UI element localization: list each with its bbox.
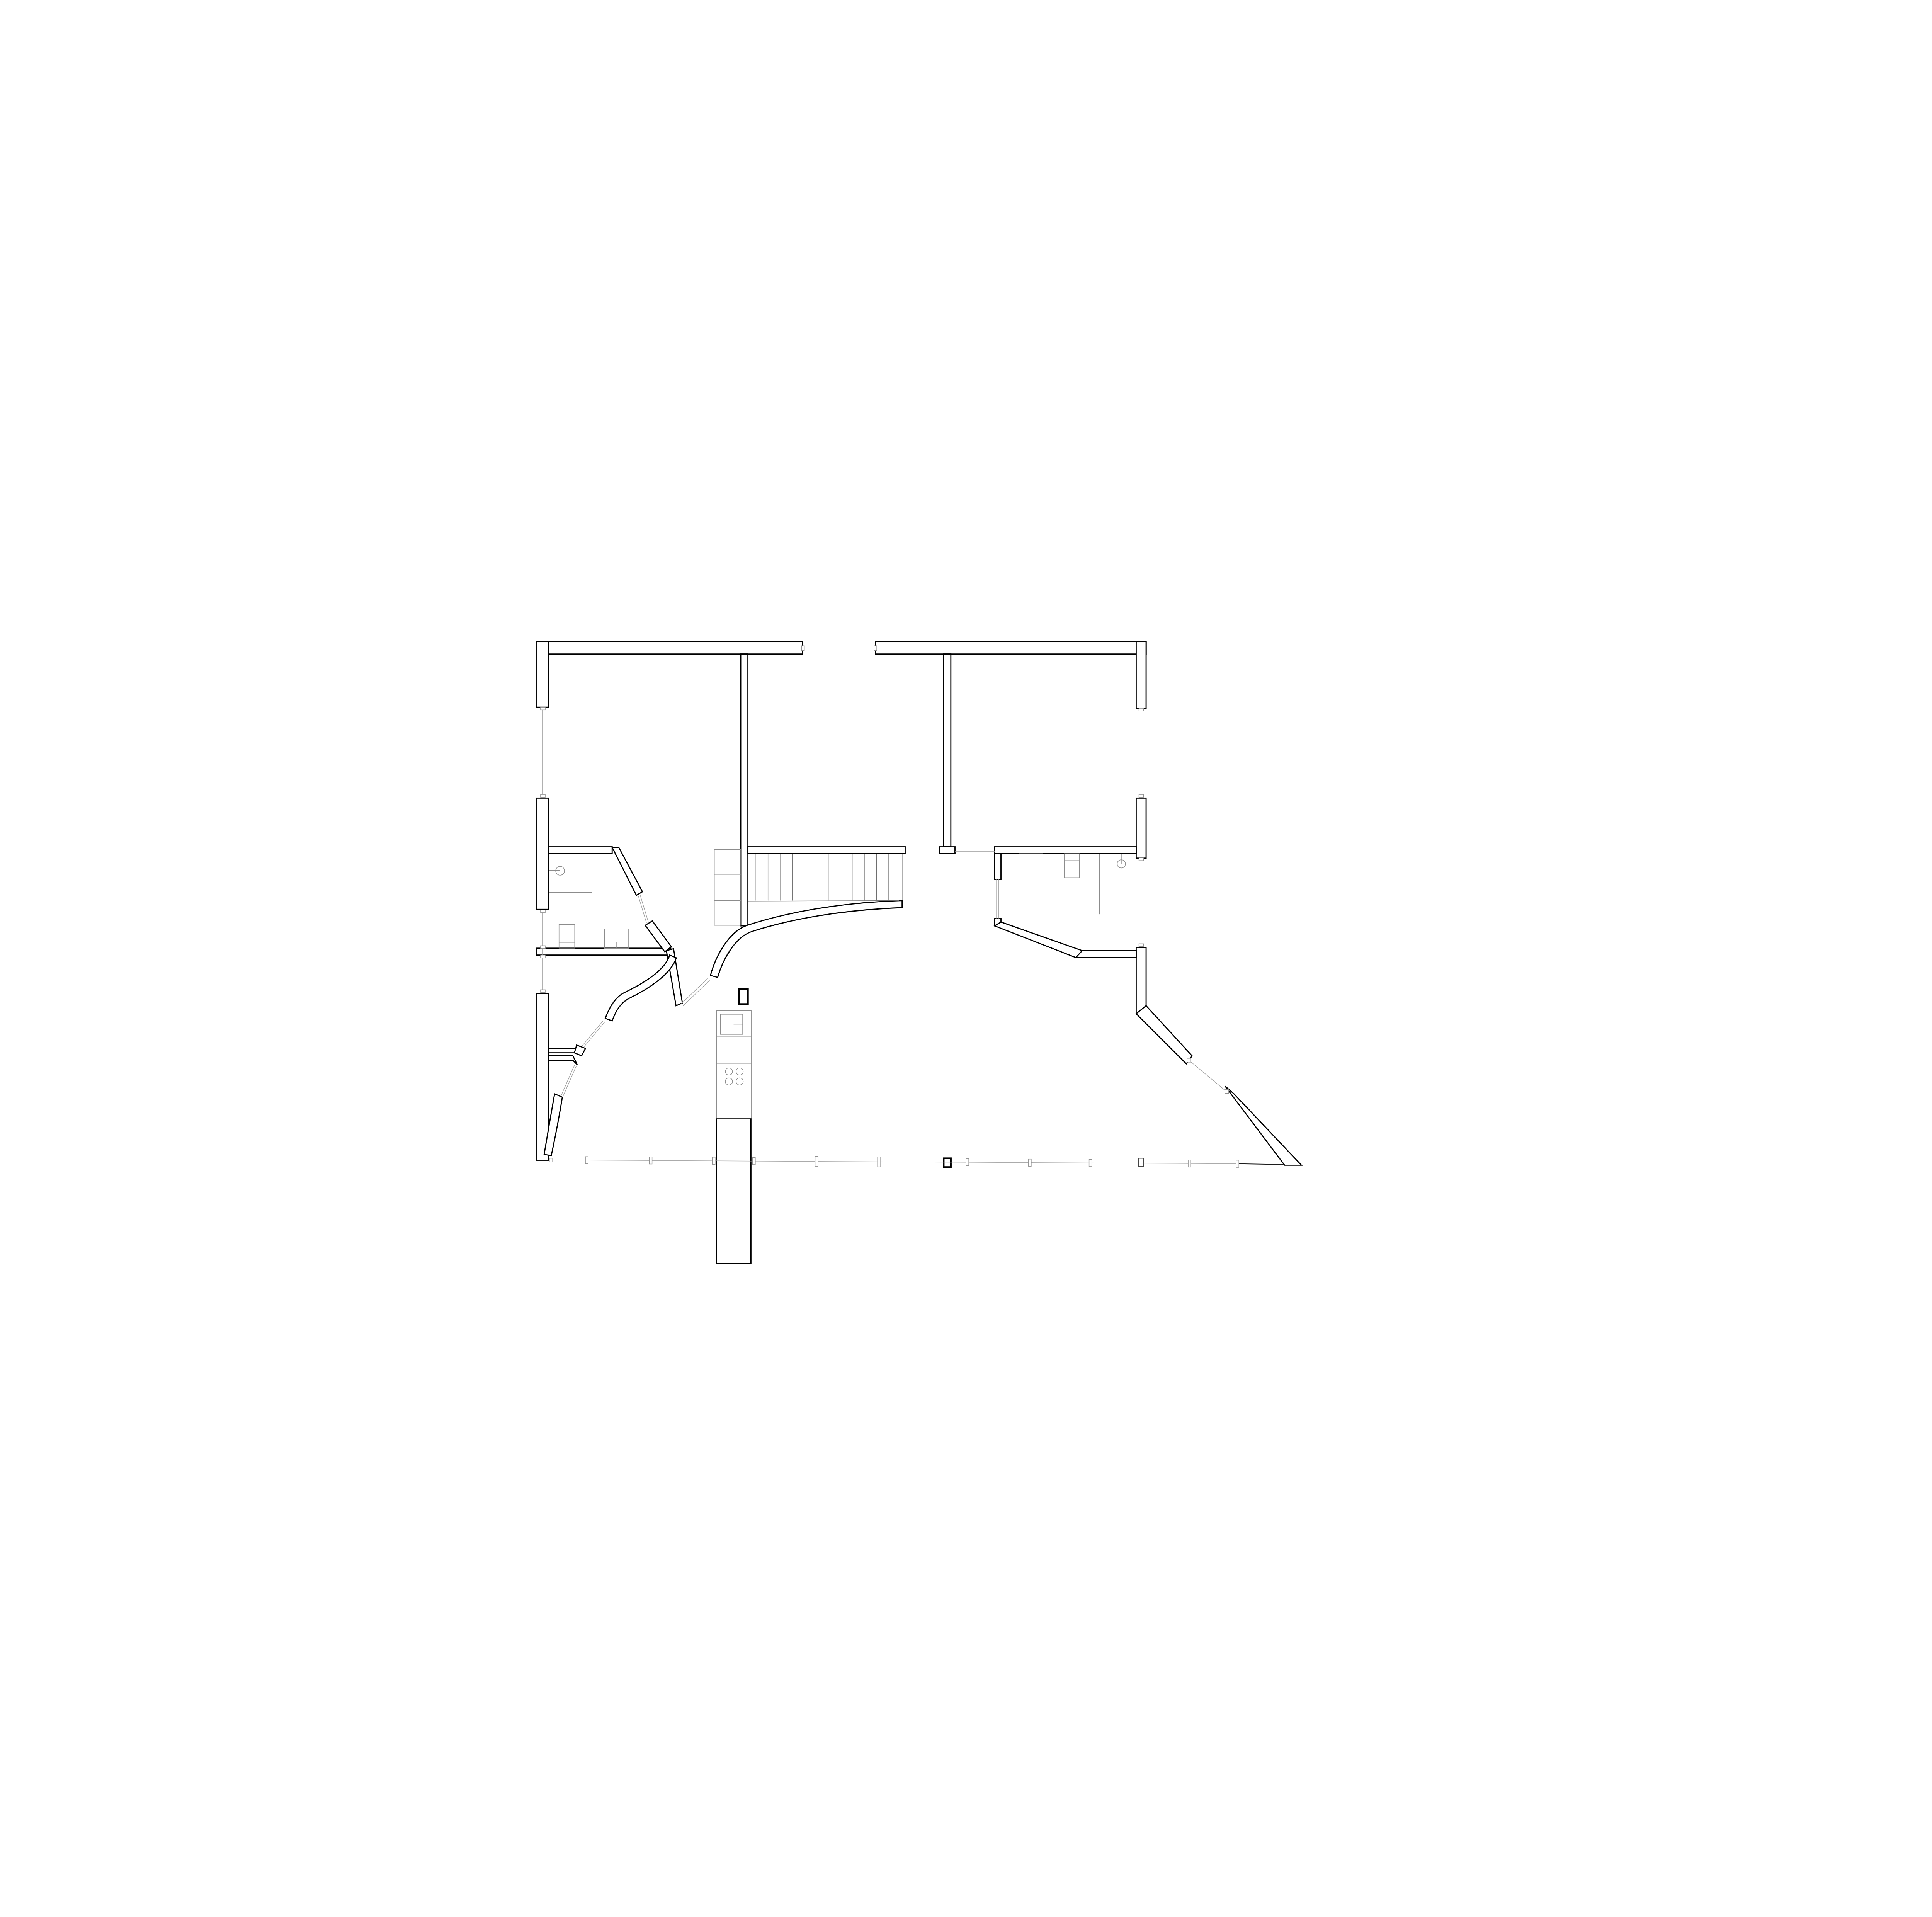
window-marker [541, 990, 545, 992]
exterior-wall-top-right [876, 642, 1146, 654]
window-marker [1187, 1058, 1191, 1062]
hall-south-wall [748, 847, 905, 854]
facade-marker [713, 1157, 715, 1165]
window-marker [802, 646, 804, 650]
facade-marker [1188, 1160, 1191, 1167]
exterior-wall-right-c [1136, 947, 1146, 1014]
window-marker [541, 910, 545, 913]
facade-marker [549, 1158, 552, 1162]
bath-unit [1064, 854, 1079, 878]
window-marker [541, 794, 545, 797]
window-marker [1139, 794, 1144, 797]
kitchen-counter [716, 1011, 751, 1118]
window-marker [1225, 1089, 1229, 1093]
bath-north-wall [995, 847, 1136, 854]
window-se-diagonal [1190, 1061, 1226, 1091]
kitchen-island [716, 1118, 751, 1263]
bath-south-wall [1076, 951, 1136, 958]
facade-marker [753, 1157, 755, 1165]
window-marker [874, 646, 877, 650]
entry-wall-lower [549, 1056, 577, 1065]
facade-marker [878, 1157, 881, 1167]
entry-wall-upper [549, 1048, 578, 1053]
hob-burner [725, 1068, 733, 1075]
facade-marker [585, 1157, 588, 1164]
glass-wc-1b [640, 895, 648, 923]
wc-basin-1 [559, 924, 575, 948]
facade-marker [966, 1158, 969, 1166]
facade-glass-line [549, 1160, 1239, 1164]
facade-marker [1089, 1159, 1092, 1167]
hob-burner [725, 1078, 733, 1085]
facade-post [1138, 1158, 1144, 1167]
window-marker [1139, 944, 1144, 946]
curved-wall-upper [711, 900, 902, 977]
facade-marker [815, 1157, 818, 1167]
hall-post [739, 989, 748, 1004]
window-marker [1139, 858, 1144, 861]
wc-diagonal-wall [612, 847, 642, 895]
window-marker [541, 955, 545, 958]
window-marker [541, 707, 545, 710]
interior-wall-2 [944, 654, 951, 847]
wc-south-wall [536, 948, 671, 955]
glass-entry-b [563, 1066, 576, 1096]
glass-arc-2a [582, 1021, 603, 1046]
entry-elbow-pier [575, 1045, 586, 1056]
se-diagonal-wall-upper [1136, 1006, 1192, 1064]
facade-plinth [1239, 1164, 1285, 1165]
hob-burner [736, 1078, 743, 1085]
facade-marker [1029, 1159, 1031, 1167]
floor-plan-drawing [0, 0, 1932, 1917]
facade-marker [649, 1157, 652, 1164]
glass-arc-2b [584, 1022, 605, 1047]
facade-pier-b [645, 921, 672, 952]
exterior-wall-left-c [536, 993, 549, 1160]
glass-wc-1a [638, 896, 646, 923]
closet [714, 850, 741, 925]
exterior-wall-right-a [1136, 642, 1146, 708]
wc-north-wall [549, 847, 612, 854]
exterior-wall-left-a [536, 642, 549, 708]
floor-plan-canvas [0, 0, 1932, 1917]
glass-entry-a [561, 1065, 574, 1095]
interior-wall-2-foot [940, 847, 955, 854]
facade-column [944, 1158, 951, 1167]
stair-edge [748, 900, 899, 901]
exterior-wall-right-b [1136, 798, 1146, 858]
exterior-wall-top-left [536, 642, 803, 654]
facade-marker [1236, 1160, 1239, 1168]
bath-west-wall [995, 854, 1001, 879]
glass-arc-1b [683, 980, 709, 1006]
curved-wall-lower [605, 955, 676, 1021]
hob-burner [736, 1068, 743, 1075]
bath-diagonal-wall [995, 922, 1082, 958]
exterior-wall-left-b [536, 798, 549, 909]
interior-wall-1 [741, 654, 748, 926]
se-diagonal-wall-lower [1225, 1086, 1301, 1165]
window-marker [1139, 708, 1144, 711]
window-marker [541, 946, 545, 948]
glass-arc-1a [681, 978, 707, 1004]
